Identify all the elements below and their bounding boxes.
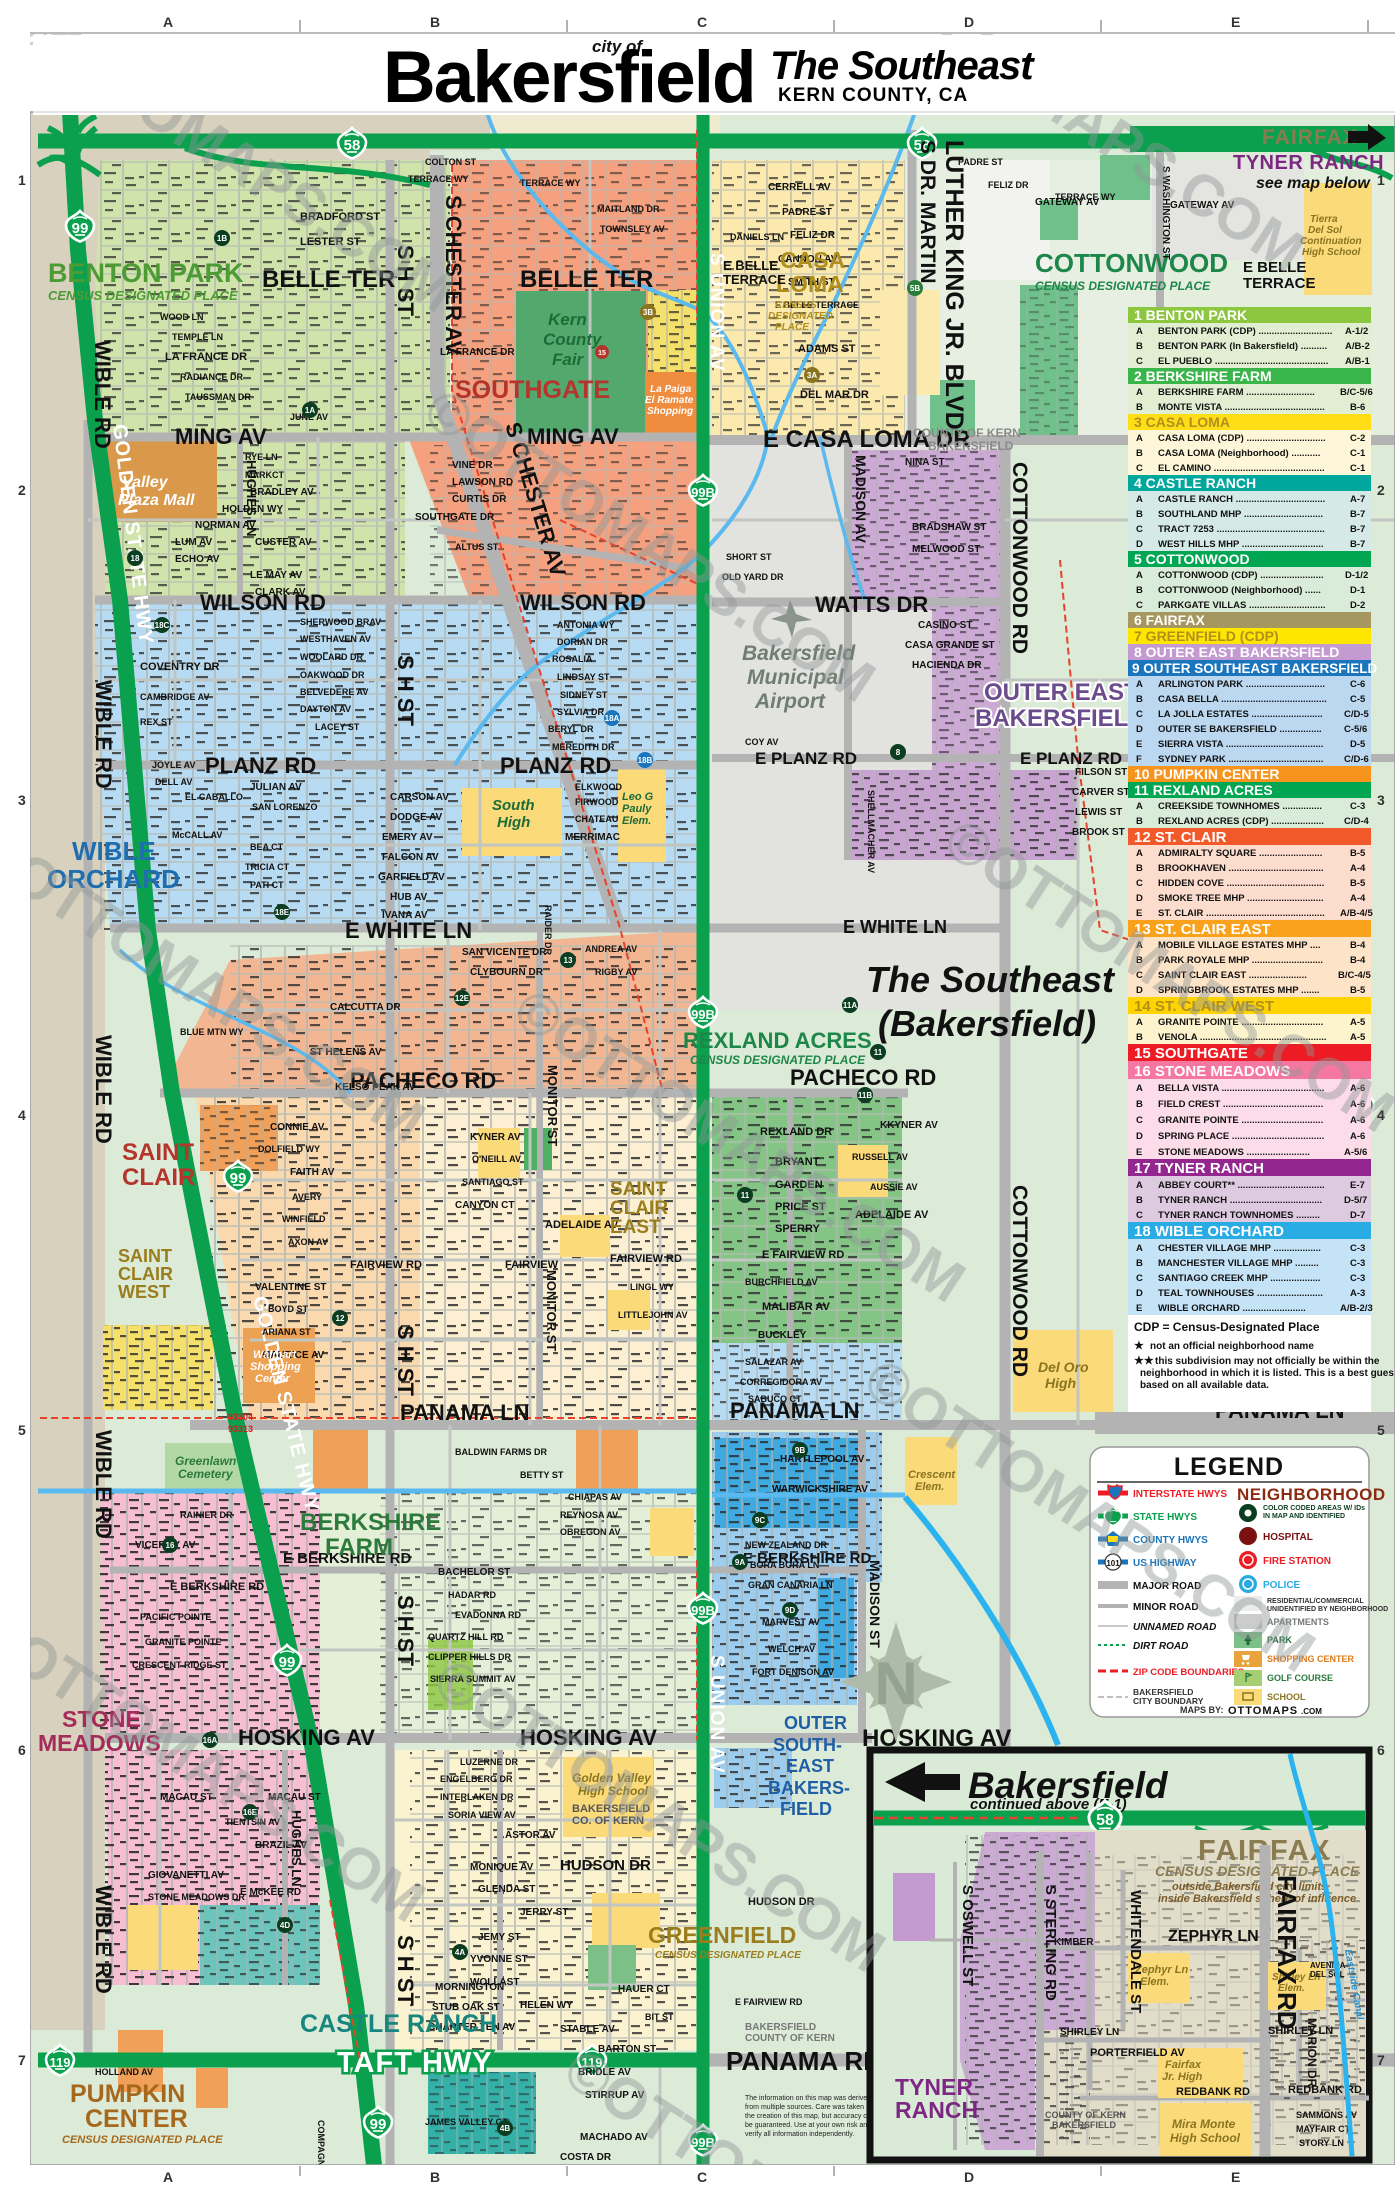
- svg-text:WILSON RD: WILSON RD: [520, 590, 646, 615]
- svg-text:Jr. High: Jr. High: [1162, 2071, 1203, 2083]
- svg-text:CRESCENT RIDGE ST: CRESCENT RIDGE ST: [132, 1660, 227, 1670]
- svg-text:12: 12: [336, 1314, 345, 1323]
- svg-text:SAN VICENTE DR: SAN VICENTE DR: [462, 947, 547, 958]
- svg-text:REYNOSA AV: REYNOSA AV: [560, 1510, 618, 1520]
- svg-text:PADRE ST: PADRE ST: [782, 207, 832, 218]
- svg-text:15: 15: [598, 350, 606, 357]
- svg-text:A: A: [1136, 848, 1143, 859]
- svg-text:REDBANK RD: REDBANK RD: [1176, 2086, 1250, 2098]
- svg-text:HOLDEN WY: HOLDEN WY: [222, 504, 283, 515]
- svg-text:GRANITE POINTE ...............: GRANITE POINTE .........................…: [1158, 1115, 1323, 1126]
- svg-text:11: 11: [874, 1048, 883, 1057]
- svg-text:3: 3: [1377, 792, 1385, 808]
- svg-text:SMOKE TREE MHP ...............: SMOKE TREE MHP .........................…: [1158, 893, 1324, 904]
- svg-text:A/B-2: A/B-2: [1345, 341, 1370, 352]
- svg-text:GRAN CANARIA LN: GRAN CANARIA LN: [748, 1580, 833, 1590]
- svg-text:MALIBAR AV: MALIBAR AV: [762, 1301, 830, 1313]
- svg-text:FAIRVIEW RD: FAIRVIEW RD: [610, 1253, 682, 1265]
- svg-text:E: E: [1136, 1147, 1142, 1158]
- svg-text:COUNTY OF KERN: COUNTY OF KERN: [913, 426, 1021, 440]
- svg-text:Pauly: Pauly: [622, 803, 652, 815]
- svg-text:IN MAP AND IDENTIFIED: IN MAP AND IDENTIFIED: [1263, 1513, 1345, 1520]
- svg-text:OUTER: OUTER: [784, 1713, 847, 1733]
- svg-text:18A: 18A: [605, 714, 620, 723]
- svg-text:WIBLE RD: WIBLE RD: [90, 340, 115, 449]
- svg-text:LA JOLLA ESTATES .............: LA JOLLA ESTATES .......................…: [1158, 709, 1323, 720]
- svg-text:CASA LOMA (CDP) ..............: CASA LOMA (CDP) ........................…: [1158, 433, 1326, 444]
- svg-text:HARTLEPOOL AV: HARTLEPOOL AV: [780, 1454, 865, 1465]
- svg-text:F: F: [1136, 754, 1142, 765]
- svg-text:MARKCT: MARKCT: [245, 470, 284, 480]
- svg-text:SPRING PLACE .................: SPRING PLACE ...........................…: [1158, 1131, 1324, 1142]
- svg-text:verify all information indepen: verify all information independently.: [745, 2131, 854, 2138]
- svg-text:HOLLAND AV: HOLLAND AV: [95, 2067, 153, 2077]
- svg-text:YVONNE ST: YVONNE ST: [470, 1954, 528, 1965]
- svg-text:Elem.: Elem.: [622, 815, 651, 827]
- svg-text:E WHITE LN: E WHITE LN: [345, 918, 472, 943]
- svg-text:FARM: FARM: [325, 1534, 393, 1561]
- svg-text:CLAIR: CLAIR: [122, 1164, 195, 1191]
- svg-text:MAITLAND DR: MAITLAND DR: [597, 204, 660, 214]
- svg-text:CASA: CASA: [780, 247, 845, 273]
- svg-text:93304: 93304: [228, 1412, 253, 1422]
- svg-text:99: 99: [279, 1654, 296, 1671]
- svg-text:6: 6: [1377, 1742, 1385, 1758]
- svg-text:C: C: [697, 14, 707, 30]
- svg-text:OUTER EAST: OUTER EAST: [984, 679, 1139, 706]
- svg-text:B-5: B-5: [1350, 985, 1366, 996]
- svg-text:EAST: EAST: [610, 1217, 661, 1238]
- svg-text:EL CABALLO: EL CABALLO: [185, 792, 243, 802]
- svg-text:STONE MEADOWS DR: STONE MEADOWS DR: [148, 1892, 245, 1902]
- svg-text:The Southeast: The Southeast: [866, 959, 1116, 1000]
- svg-text:CASA LOMA (Neighborhood) .....: CASA LOMA (Neighborhood) ...........: [1158, 448, 1320, 459]
- svg-text:WIBLE RD: WIBLE RD: [91, 680, 116, 789]
- svg-text:MAPS BY:: MAPS BY:: [1180, 1705, 1223, 1715]
- svg-text:HELEN WY: HELEN WY: [520, 2000, 573, 2011]
- svg-text:RAIDER DR: RAIDER DR: [543, 905, 553, 956]
- svg-text:CENSUS DESIGNATED PLACE: CENSUS DESIGNATED PLACE: [48, 288, 238, 303]
- svg-text:LUZERNE DR: LUZERNE DR: [460, 1757, 518, 1767]
- svg-text:SAINT: SAINT: [118, 1246, 172, 1266]
- svg-text:2 BERKSHIRE FARM: 2 BERKSHIRE FARM: [1134, 368, 1272, 384]
- svg-text:JERRY ST: JERRY ST: [520, 1907, 568, 1918]
- svg-text:A/B-1: A/B-1: [1345, 356, 1371, 367]
- svg-text:ALTUS ST: ALTUS ST: [455, 542, 499, 552]
- svg-text:SHELLMACHER AV: SHELLMACHER AV: [866, 790, 876, 873]
- svg-text:4A: 4A: [455, 1948, 465, 1957]
- svg-text:see map below: see map below: [1256, 175, 1371, 192]
- svg-text:DODGE AV: DODGE AV: [390, 812, 443, 823]
- svg-text:CALCUTTA DR: CALCUTTA DR: [330, 1002, 401, 1013]
- svg-text:WESTHAVEN AV: WESTHAVEN AV: [300, 634, 371, 644]
- svg-text:KKYNER AV: KKYNER AV: [880, 1120, 938, 1131]
- svg-text:MEREDITH DR: MEREDITH DR: [552, 742, 615, 752]
- svg-text:County: County: [543, 330, 603, 349]
- svg-text:4B: 4B: [500, 2124, 510, 2133]
- svg-text:TRACT 7253 ...................: TRACT 7253 .............................…: [1158, 524, 1325, 535]
- svg-text:OAKWOOD DR: OAKWOOD DR: [300, 670, 365, 680]
- svg-text:Del Oro: Del Oro: [1038, 1359, 1089, 1375]
- svg-text:Center: Center: [255, 1373, 291, 1385]
- svg-text:LACEY ST: LACEY ST: [315, 722, 360, 732]
- svg-text:TAUSSMAN DR: TAUSSMAN DR: [185, 392, 251, 402]
- svg-text:99B: 99B: [691, 485, 715, 500]
- svg-text:(Bakersfield): (Bakersfield): [878, 1003, 1096, 1044]
- svg-text:GIOVANETTI AV: GIOVANETTI AV: [148, 1870, 224, 1881]
- svg-text:outside Bakersfield city limit: outside Bakersfield city limits: [1172, 1881, 1327, 1893]
- svg-text:A: A: [1136, 326, 1143, 337]
- svg-text:Greenlawn: Greenlawn: [175, 1454, 236, 1468]
- svg-text:RAINIER DR: RAINIER DR: [180, 1510, 233, 1520]
- svg-text:ASTOR AV: ASTOR AV: [505, 1830, 556, 1841]
- svg-text:BENTON PARK (CDP) ............: BENTON PARK (CDP) ......................…: [1158, 326, 1332, 337]
- svg-text:PADRE ST: PADRE ST: [958, 157, 1003, 167]
- svg-text:TERRACE WY: TERRACE WY: [408, 174, 469, 184]
- svg-text:C: C: [1136, 356, 1143, 367]
- svg-text:D: D: [1136, 893, 1143, 904]
- svg-text:MADISON AV: MADISON AV: [853, 455, 869, 544]
- svg-text:A-3: A-3: [1350, 1288, 1365, 1299]
- svg-text:The information on this map wa: The information on this map was derived: [745, 2095, 871, 2102]
- svg-text:C-3: C-3: [1350, 1258, 1365, 1269]
- svg-text:SOUTH-: SOUTH-: [773, 1735, 842, 1755]
- svg-text:ZIP CODE BOUNDARIES: ZIP CODE BOUNDARIES: [1133, 1667, 1244, 1678]
- svg-text:E: E: [1231, 14, 1240, 30]
- svg-text:12E: 12E: [455, 994, 470, 1003]
- svg-text:BAKERS-: BAKERS-: [768, 1778, 850, 1798]
- svg-text:LEGEND: LEGEND: [1174, 1453, 1284, 1481]
- svg-text:SORIA VIEW AV: SORIA VIEW AV: [448, 1810, 516, 1820]
- svg-text:CUSTER AV: CUSTER AV: [255, 537, 312, 548]
- svg-text:C: C: [1136, 524, 1143, 535]
- svg-text:High School: High School: [1302, 247, 1361, 258]
- svg-text:Shopping: Shopping: [250, 1361, 301, 1373]
- svg-text:TYNER RANCH TOWNHOMES ........: TYNER RANCH TOWNHOMES .........: [1158, 1210, 1320, 1221]
- svg-text:PLANZ RD: PLANZ RD: [205, 753, 316, 778]
- svg-text:BAKERSFIELD: BAKERSFIELD: [975, 705, 1146, 732]
- svg-text:High School: High School: [1170, 2131, 1241, 2145]
- svg-text:LEWIS ST: LEWIS ST: [1075, 807, 1122, 818]
- svg-text:BELLE TER: BELLE TER: [520, 266, 653, 293]
- svg-text:A-5: A-5: [1350, 1032, 1366, 1043]
- svg-text:ST. CLAIR ....................: ST. CLAIR ..............................…: [1158, 908, 1325, 919]
- svg-text:SYLVIA DR: SYLVIA DR: [557, 707, 605, 717]
- svg-text:COUNTY OF KERN: COUNTY OF KERN: [745, 2033, 835, 2044]
- svg-text:LA FRANCE DR: LA FRANCE DR: [440, 347, 515, 358]
- svg-text:Cemetery: Cemetery: [178, 1467, 234, 1481]
- svg-text:BETTY ST: BETTY ST: [520, 1470, 564, 1480]
- svg-text:ELKWOOD: ELKWOOD: [575, 782, 622, 792]
- svg-text:ADAMS ST: ADAMS ST: [798, 343, 856, 355]
- svg-text:A-5: A-5: [1350, 1017, 1366, 1028]
- svg-text:JOYLE AV: JOYLE AV: [152, 760, 196, 770]
- svg-text:GATEWAY AV: GATEWAY AV: [1035, 197, 1100, 208]
- svg-text:Airport: Airport: [754, 690, 826, 713]
- svg-text:CURTIS DR: CURTIS DR: [452, 494, 507, 505]
- svg-text:E BELLE: E BELLE: [723, 258, 778, 273]
- svg-text:4D: 4D: [280, 1921, 290, 1930]
- svg-text:A: A: [1136, 387, 1143, 398]
- svg-text:MERRIMAC: MERRIMAC: [565, 832, 620, 843]
- svg-text:Fair: Fair: [552, 350, 585, 369]
- svg-text:BENTON PARK: BENTON PARK: [48, 258, 244, 288]
- svg-text:18B: 18B: [638, 756, 653, 765]
- svg-text:C: C: [1136, 709, 1143, 720]
- svg-text:DAYTON AV: DAYTON AV: [300, 704, 351, 714]
- svg-text:CLARK AV: CLARK AV: [255, 587, 306, 598]
- svg-text:4: 4: [1377, 1107, 1385, 1123]
- svg-text:High: High: [497, 814, 530, 831]
- svg-text:KYNER AV: KYNER AV: [470, 1132, 521, 1143]
- svg-text:DESIGNATED: DESIGNATED: [768, 311, 833, 322]
- svg-text:BAKERSFIELD: BAKERSFIELD: [1052, 2120, 1117, 2130]
- svg-text:99: 99: [72, 220, 89, 237]
- svg-text:QUARTZ HILL RD: QUARTZ HILL RD: [428, 1632, 504, 1642]
- svg-text:NEIGHBORHOOD: NEIGHBORHOOD: [1237, 1485, 1386, 1504]
- svg-text:A/B-2/3: A/B-2/3: [1340, 1303, 1373, 1314]
- svg-text:neighborhood in which it is li: neighborhood in which it is listed. This…: [1140, 1368, 1400, 1379]
- svg-text:CDP = Census-Designated Place: CDP = Census-Designated Place: [1134, 1320, 1320, 1334]
- svg-text:58: 58: [1096, 1812, 1114, 1829]
- svg-text:A: A: [163, 2169, 173, 2185]
- svg-text:3 CASA LOMA: 3 CASA LOMA: [1134, 414, 1230, 430]
- svg-text:MADISON ST: MADISON ST: [867, 1560, 883, 1648]
- svg-text:D-1/2: D-1/2: [1345, 570, 1368, 581]
- svg-text:B: B: [430, 14, 440, 30]
- svg-text:D-7: D-7: [1350, 1210, 1365, 1221]
- svg-text:Kern: Kern: [548, 310, 587, 329]
- svg-text:11A: 11A: [843, 1001, 857, 1010]
- svg-text:MONITOR ST: MONITOR ST: [545, 1065, 560, 1146]
- svg-text:C: C: [1136, 1115, 1143, 1126]
- svg-text:DOLFIELD WY: DOLFIELD WY: [258, 1144, 320, 1154]
- svg-text:OUTER SE BAKERSFIELD .........: OUTER SE BAKERSFIELD ................: [1158, 724, 1322, 735]
- svg-text:★★: ★★: [1134, 1355, 1154, 1367]
- svg-text:ANTONIA WY: ANTONIA WY: [557, 620, 615, 630]
- svg-text:BAKERSFIELD: BAKERSFIELD: [928, 439, 1014, 453]
- svg-text:CLAIR: CLAIR: [610, 1198, 668, 1219]
- svg-text:COLOR CODED AREAS W/ IDs: COLOR CODED AREAS W/ IDs: [1263, 1505, 1365, 1512]
- svg-text:E: E: [1136, 1303, 1142, 1314]
- svg-text:Tierra: Tierra: [1310, 214, 1338, 225]
- svg-text:HAUER CT: HAUER CT: [618, 1984, 670, 1995]
- svg-text:based on all available data.: based on all available data.: [1140, 1380, 1269, 1391]
- svg-text:C-1: C-1: [1350, 463, 1366, 474]
- svg-text:HIDDEN COVE ..................: HIDDEN COVE ............................…: [1158, 878, 1324, 889]
- svg-text:B: B: [1136, 1099, 1143, 1110]
- svg-text:13: 13: [564, 956, 573, 965]
- svg-text:FAIRVIEW: FAIRVIEW: [505, 1259, 559, 1271]
- svg-text:OBREGON AV: OBREGON AV: [560, 1527, 621, 1537]
- svg-text:9A: 9A: [735, 1558, 745, 1567]
- svg-text:COUNTY OF KERN: COUNTY OF KERN: [1045, 2110, 1126, 2120]
- svg-text:MING AV: MING AV: [175, 424, 267, 449]
- svg-text:HOSKING AV: HOSKING AV: [238, 1725, 375, 1750]
- svg-text:.COM: .COM: [1301, 1707, 1322, 1716]
- svg-text:A/B-4/5: A/B-4/5: [1340, 908, 1373, 919]
- svg-text:POLICE: POLICE: [1263, 1580, 1301, 1591]
- svg-text:B: B: [1136, 585, 1143, 596]
- svg-text:the creation of this map, but: the creation of this map, but accuracy c…: [745, 2113, 884, 2120]
- svg-text:be guaranteed. Use at your own: be guaranteed. Use at your own risk and: [745, 2122, 871, 2129]
- svg-text:EAST: EAST: [786, 1756, 834, 1776]
- svg-text:SANTIAGO CREEK MHP ...........: SANTIAGO CREEK MHP ...................: [1158, 1273, 1320, 1284]
- svg-text:3A: 3A: [807, 371, 817, 380]
- svg-text:DELL AV: DELL AV: [155, 777, 192, 787]
- svg-text:5: 5: [1377, 1422, 1385, 1438]
- svg-text:11 REXLAND ACRES: 11 REXLAND ACRES: [1134, 782, 1273, 798]
- svg-text:S H ST: S H ST: [393, 1935, 418, 2006]
- svg-text:A-5/6: A-5/6: [1344, 1147, 1367, 1158]
- svg-text:BENTON PARK (In Bakersfield) .: BENTON PARK (In Bakersfield) ..........: [1158, 341, 1327, 352]
- svg-text:BAKERSFIELD: BAKERSFIELD: [745, 2022, 816, 2033]
- svg-text:MONIQUE AV: MONIQUE AV: [470, 1862, 534, 1873]
- svg-text:S H ST: S H ST: [393, 1595, 418, 1666]
- svg-text:FAIRFAX RD: FAIRFAX RD: [1272, 1875, 1302, 2030]
- svg-text:5B: 5B: [910, 284, 920, 293]
- svg-text:CHIAPAS AV: CHIAPAS AV: [568, 1492, 622, 1502]
- svg-text:STABLE AV: STABLE AV: [560, 2024, 615, 2035]
- svg-text:CENSUS DESIGNATED PLACE: CENSUS DESIGNATED PLACE: [1155, 1863, 1360, 1879]
- svg-text:B: B: [1136, 863, 1143, 874]
- svg-text:REXLAND ACRES: REXLAND ACRES: [683, 1028, 872, 1053]
- svg-text:WINFIELD: WINFIELD: [282, 1214, 326, 1224]
- svg-text:NORMAN AV: NORMAN AV: [195, 520, 256, 531]
- svg-text:BACHELOR ST: BACHELOR ST: [438, 1567, 510, 1578]
- svg-text:CENSUS DESIGNATED PLACE: CENSUS DESIGNATED PLACE: [1035, 279, 1211, 293]
- svg-text:CENSUS: CENSUS: [775, 300, 817, 311]
- svg-text:C: C: [1136, 1273, 1143, 1284]
- svg-text:CANYON CT: CANYON CT: [455, 1200, 514, 1211]
- svg-text:CENSUS DESIGNATED PLACE: CENSUS DESIGNATED PLACE: [62, 2134, 223, 2146]
- svg-text:SAINT: SAINT: [122, 1139, 194, 1166]
- svg-text:EL PUEBLO ....................: EL PUEBLO ..............................…: [1158, 356, 1328, 367]
- svg-text:WIBLE RD: WIBLE RD: [91, 1035, 116, 1144]
- svg-text:MANCHESTER VILLAGE MHP .......: MANCHESTER VILLAGE MHP .........: [1158, 1258, 1319, 1269]
- svg-text:ADELAIDE AV: ADELAIDE AV: [545, 1219, 619, 1231]
- svg-text:A: A: [1136, 1180, 1143, 1191]
- svg-text:this subdivision may not offic: this subdivision may not officially be w…: [1155, 1356, 1380, 1367]
- svg-text:FIELD: FIELD: [780, 1799, 832, 1819]
- svg-text:CASA GRANDE ST: CASA GRANDE ST: [905, 640, 995, 651]
- svg-text:SOUTHGATE DR: SOUTHGATE DR: [415, 512, 495, 523]
- svg-text:WOOD LN: WOOD LN: [160, 312, 204, 322]
- svg-text:99: 99: [230, 1170, 247, 1187]
- svg-text:B: B: [1136, 694, 1143, 705]
- svg-text:BELVEDERE AV: BELVEDERE AV: [300, 687, 368, 697]
- svg-text:HUB AV: HUB AV: [390, 892, 428, 903]
- svg-text:WATTS DR: WATTS DR: [815, 592, 928, 617]
- svg-text:A: A: [1136, 1017, 1143, 1028]
- svg-text:SANTIAGO ST: SANTIAGO ST: [462, 1177, 524, 1187]
- svg-text:A: A: [1136, 1243, 1143, 1254]
- svg-text:FELIZ DR: FELIZ DR: [790, 230, 836, 241]
- svg-text:12 ST. CLAIR: 12 ST. CLAIR: [1134, 829, 1227, 846]
- svg-text:CLYBOURN DR: CLYBOURN DR: [470, 967, 544, 978]
- svg-text:COTTONWOOD (CDP) .............: COTTONWOOD (CDP) .......................…: [1158, 570, 1324, 581]
- svg-text:CARSON AV: CARSON AV: [390, 792, 449, 803]
- svg-text:E: E: [1136, 739, 1142, 750]
- svg-text:BROOKHAVEN ...................: BROOKHAVEN .............................…: [1158, 863, 1324, 874]
- svg-text:FAIRFAX: FAIRFAX: [1262, 126, 1358, 149]
- svg-text:3: 3: [18, 792, 26, 808]
- svg-text:9C: 9C: [755, 1516, 765, 1525]
- svg-text:TEAL TOWNHOUSES ..............: TEAL TOWNHOUSES ........................…: [1158, 1288, 1323, 1299]
- svg-text:WEST HILLS MHP ...............: WEST HILLS MHP .........................…: [1158, 539, 1324, 550]
- svg-text:A: A: [1136, 679, 1143, 690]
- svg-text:B-5: B-5: [1350, 878, 1366, 889]
- svg-text:C: C: [1136, 878, 1143, 889]
- svg-text:SCHOOL: SCHOOL: [1267, 1692, 1306, 1702]
- svg-text:5: 5: [18, 1422, 26, 1438]
- svg-text:D: D: [1136, 724, 1143, 735]
- svg-text:E: E: [1231, 2169, 1240, 2185]
- svg-text:Valley: Valley: [122, 474, 169, 491]
- svg-text:TRICIA CT: TRICIA CT: [245, 862, 290, 872]
- svg-text:B-7: B-7: [1350, 509, 1365, 520]
- svg-text:C/D-6: C/D-6: [1344, 754, 1369, 765]
- svg-text:AVERY: AVERY: [292, 1192, 322, 1202]
- svg-text:D-5/7: D-5/7: [1344, 1195, 1367, 1206]
- svg-text:B: B: [1136, 341, 1143, 352]
- svg-text:The Southeast: The Southeast: [770, 44, 1035, 88]
- svg-text:HOSPITAL: HOSPITAL: [1263, 1532, 1313, 1543]
- svg-text:11B: 11B: [858, 1091, 872, 1100]
- svg-text:17 TYNER RANCH: 17 TYNER RANCH: [1134, 1160, 1264, 1177]
- svg-text:E FAIRVIEW RD: E FAIRVIEW RD: [735, 1997, 803, 2007]
- svg-text:D-2: D-2: [1350, 600, 1365, 611]
- svg-text:ARIANA ST: ARIANA ST: [262, 1327, 311, 1337]
- svg-text:BORA BORA LN: BORA BORA LN: [750, 1560, 819, 1570]
- svg-text:A-4: A-4: [1350, 893, 1366, 904]
- svg-text:C-3: C-3: [1350, 801, 1365, 812]
- svg-text:B: B: [1136, 448, 1143, 459]
- svg-text:BERKSHIRE FARM ...............: BERKSHIRE FARM .........................…: [1158, 387, 1315, 398]
- svg-text:SHERWOOD BRAV: SHERWOOD BRAV: [300, 617, 381, 627]
- svg-text:E-7: E-7: [1350, 1180, 1365, 1191]
- svg-text:WEST: WEST: [118, 1282, 170, 1302]
- svg-text:C: C: [1136, 463, 1143, 474]
- svg-text:CREEKSIDE TOWNHOMES ..........: CREEKSIDE TOWNHOMES ...............: [1158, 801, 1322, 812]
- svg-text:TERRACE: TERRACE: [723, 272, 786, 287]
- svg-text:CAMBRIDGE AV: CAMBRIDGE AV: [140, 692, 210, 702]
- svg-text:El Ramate: El Ramate: [645, 395, 694, 406]
- svg-text:CASINO ST: CASINO ST: [918, 620, 972, 631]
- svg-text:BOYD ST: BOYD ST: [268, 1304, 309, 1314]
- svg-text:PACIFIC POINTE: PACIFIC POINTE: [140, 1612, 211, 1622]
- svg-text:C-2: C-2: [1350, 433, 1365, 444]
- svg-text:E PLANZ RD: E PLANZ RD: [755, 749, 857, 768]
- svg-text:EVADONNA RD: EVADONNA RD: [455, 1610, 522, 1620]
- svg-text:MONITOR ST: MONITOR ST: [544, 1270, 559, 1351]
- svg-text:DANIELS LN: DANIELS LN: [730, 232, 784, 242]
- svg-text:3B: 3B: [643, 308, 653, 317]
- svg-text:OTTOMAPS: OTTOMAPS: [1228, 1705, 1298, 1717]
- svg-text:A-4: A-4: [1350, 863, 1366, 874]
- svg-text:AUSSIE AV: AUSSIE AV: [870, 1182, 918, 1192]
- svg-text:BEA CT: BEA CT: [250, 842, 284, 852]
- svg-text:BRADLEY AV: BRADLEY AV: [250, 487, 314, 498]
- svg-text:1B: 1B: [217, 234, 227, 243]
- svg-text:S H ST: S H ST: [393, 655, 418, 726]
- svg-text:BIT ST: BIT ST: [645, 2012, 674, 2022]
- svg-text:10 PUMPKIN CENTER: 10 PUMPKIN CENTER: [1134, 766, 1279, 782]
- svg-text:18 WIBLE ORCHARD: 18 WIBLE ORCHARD: [1134, 1223, 1284, 1240]
- svg-text:8 OUTER EAST BAKERSFIELD: 8 OUTER EAST BAKERSFIELD: [1134, 644, 1339, 660]
- svg-text:EL CAMINO ....................: EL CAMINO ..............................…: [1158, 463, 1325, 474]
- svg-text:PATI CT: PATI CT: [250, 880, 284, 890]
